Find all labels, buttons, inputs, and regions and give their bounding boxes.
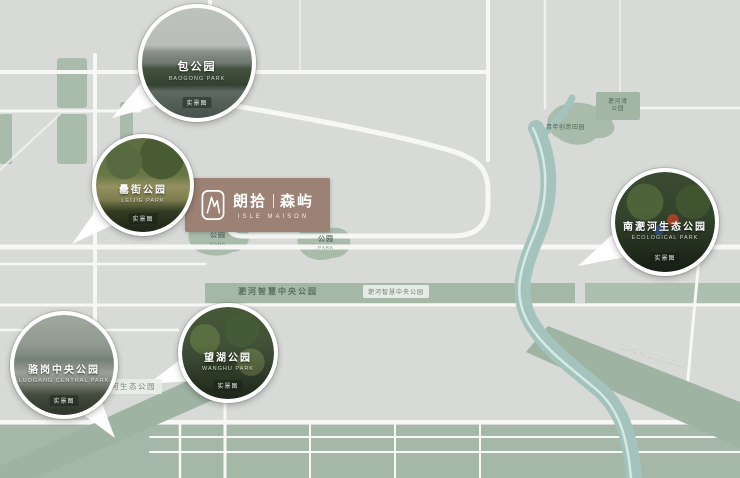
- project-name-left: 朗拾: [233, 190, 267, 211]
- project-name-en: ISLE MAISON: [238, 214, 309, 220]
- poi-title: 骆岗中央公园: [28, 361, 100, 376]
- park-patch-label-1: 公园 PARK: [196, 230, 240, 246]
- poi-text: 南淝河生态公园 ECOLOGICAL PARK 实景图: [615, 172, 715, 272]
- poi-subtitle: BAOGONG PARK: [169, 76, 226, 82]
- poi-title: 包公园: [178, 58, 217, 74]
- project-logo-text: 朗拾 森屿 ISLE MAISON: [233, 190, 314, 220]
- location-map: 公园 PARK 公园 PARK 淝河智慧中央公园 淝河智慧中央公园 青年创意田园…: [0, 0, 740, 478]
- poi-nanfeihe-eco-park: 南淝河生态公园 ECOLOGICAL PARK 实景图: [611, 168, 719, 276]
- poi-leijie-park: 罍街公园 LEIJIE PARK 实景图: [92, 134, 194, 236]
- park-patch-2-sub: PARK: [304, 245, 348, 250]
- park-patch-2-title: 公园: [304, 234, 348, 244]
- park-patch-label-2: 公园 PARK: [304, 234, 348, 250]
- top-right-park-box: 淝河湾 公园: [596, 92, 640, 120]
- photo-badge: 实景图: [650, 252, 679, 263]
- photo-badge: 实景图: [213, 380, 242, 391]
- central-band-badge: 淝河智慧中央公园: [363, 285, 429, 298]
- poi-title: 罍街公园: [119, 181, 167, 196]
- poi-title: 望湖公园: [204, 349, 252, 364]
- central-band-label: 淝河智慧中央公园: [238, 286, 318, 297]
- poi-subtitle: WANGHU PARK: [202, 366, 254, 372]
- project-logo-icon: [201, 187, 225, 223]
- poi-text: 骆岗中央公园 LUOGANG CENTRAL PARK 实景图: [14, 315, 114, 415]
- photo-badge: 实景图: [182, 97, 211, 108]
- poi-subtitle: LEIJIE PARK: [121, 198, 164, 204]
- poi-text: 望湖公园 WANGHU PARK 实景图: [182, 307, 274, 399]
- poi-wanghu-park: 望湖公园 WANGHU PARK 实景图: [178, 303, 278, 403]
- poi-text: 罍街公园 LEIJIE PARK 实景图: [96, 138, 190, 232]
- photo-badge: 实景图: [128, 213, 157, 224]
- top-right-box-line2: 公园: [611, 106, 624, 113]
- project-name-right: 森屿: [280, 190, 314, 211]
- poi-luogang-central-park: 骆岗中央公园 LUOGANG CENTRAL PARK 实景图: [10, 311, 118, 419]
- poi-subtitle: ECOLOGICAL PARK: [632, 235, 699, 241]
- project-logo-box: 朗拾 森屿 ISLE MAISON: [185, 178, 330, 232]
- poi-subtitle: LUOGANG CENTRAL PARK: [19, 378, 110, 384]
- logo-divider: [273, 194, 274, 208]
- park-patch-1-sub: PARK: [196, 241, 240, 246]
- poi-title: 南淝河生态公园: [623, 218, 707, 233]
- photo-badge: 实景图: [49, 395, 78, 406]
- poi-text: 包公园 BAOGONG PARK 实景图: [142, 8, 252, 118]
- top-right-park-label: 青年创意田园: [546, 122, 585, 131]
- poi-baogong-park: 包公园 BAOGONG PARK 实景图: [138, 4, 256, 122]
- top-right-box-line1: 淝河湾: [608, 99, 628, 106]
